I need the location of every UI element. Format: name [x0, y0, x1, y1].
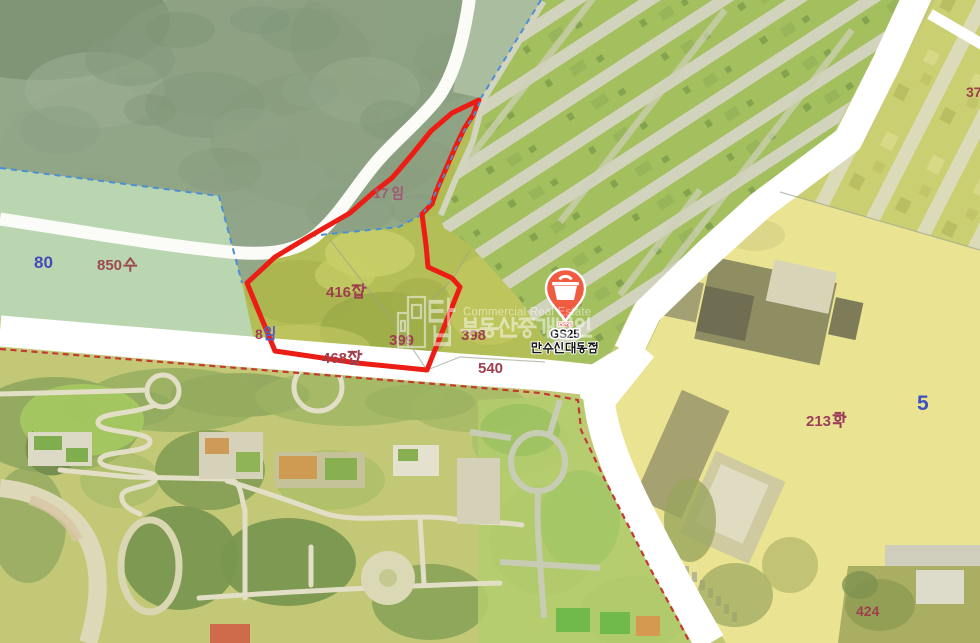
svg-text:468: 468: [322, 350, 347, 367]
svg-text:8: 8: [255, 326, 263, 342]
svg-text:850: 850: [97, 257, 122, 274]
svg-text:379: 379: [966, 84, 980, 100]
svg-text:Commercial Real Estate: Commercial Real Estate: [463, 307, 591, 319]
svg-text:17: 17: [373, 185, 389, 201]
svg-text:213: 213: [806, 413, 831, 430]
svg-text:5: 5: [917, 392, 929, 415]
svg-text:80: 80: [34, 253, 53, 272]
svg-text:424: 424: [856, 603, 880, 619]
svg-text:GS25: GS25: [550, 329, 580, 341]
svg-text:416: 416: [326, 284, 351, 301]
svg-text:540: 540: [478, 360, 503, 377]
